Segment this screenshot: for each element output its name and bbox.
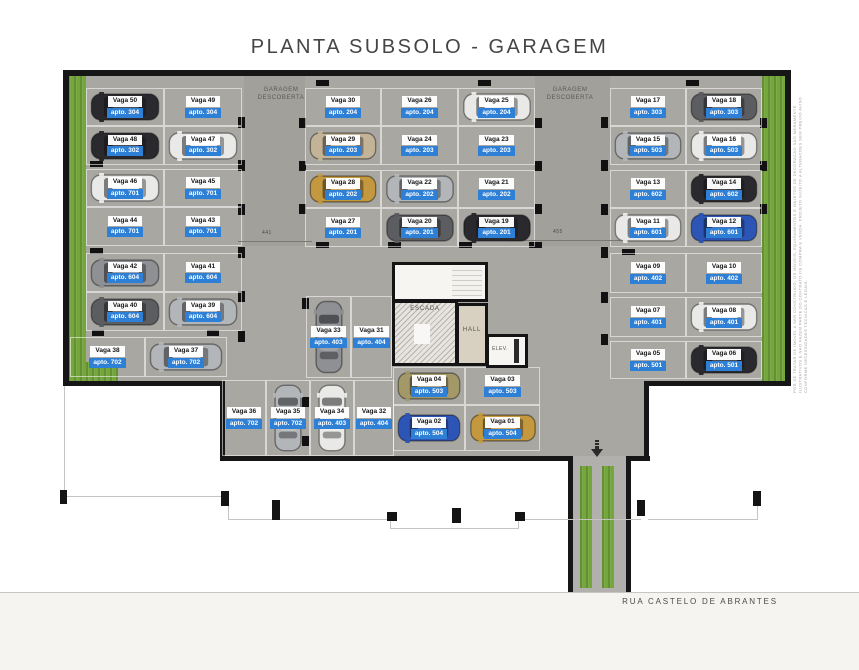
parking-stall: Vaga 03apto. 503 xyxy=(465,367,540,405)
stall-label-stack: Vaga 47apto. 302 xyxy=(185,135,221,157)
pillar-mark xyxy=(238,331,245,342)
vaga-label: Vaga 26 xyxy=(402,96,436,106)
vaga-label: Vaga 49 xyxy=(186,96,220,106)
vaga-label: Vaga 37 xyxy=(169,346,203,356)
stall-label-stack: Vaga 44apto. 701 xyxy=(107,216,143,238)
grass-strip xyxy=(602,466,614,588)
elevator-door-bar xyxy=(514,339,519,363)
vaga-label: Vaga 41 xyxy=(186,262,220,272)
vaga-label: Vaga 17 xyxy=(631,96,665,106)
apto-label: apto. 602 xyxy=(706,190,742,200)
stall-label-stack: Vaga 42apto. 604 xyxy=(107,262,143,284)
parking-stall: Vaga 11apto. 601 xyxy=(610,208,686,247)
stall-label-stack: Vaga 02apto. 504 xyxy=(411,417,447,439)
vaga-label: Vaga 31 xyxy=(354,326,388,336)
vaga-label: Vaga 16 xyxy=(707,135,741,145)
projection-line xyxy=(64,496,229,497)
apto-label: apto. 401 xyxy=(630,318,666,328)
wall xyxy=(63,381,225,386)
stall-label-stack: Vaga 43apto. 701 xyxy=(185,216,221,238)
projection-line xyxy=(518,519,641,520)
projection-line xyxy=(648,519,758,520)
vaga-label: Vaga 30 xyxy=(326,96,360,106)
stall-label-stack: Vaga 12apto. 601 xyxy=(706,217,742,239)
vaga-label: Vaga 33 xyxy=(311,326,345,336)
hall-label: HALL xyxy=(456,327,488,333)
dimension-label: 441 xyxy=(262,230,292,238)
projection-pillar-mark xyxy=(452,508,461,523)
projection-pillar-mark xyxy=(221,491,229,506)
vaga-label: Vaga 11 xyxy=(631,217,665,227)
stall-label-stack: Vaga 28apto. 202 xyxy=(325,178,361,200)
uncovered-garage-label-line1: GARAGEM xyxy=(535,86,605,94)
parking-stall: Vaga 21apto. 202 xyxy=(458,170,535,208)
parking-stall: Vaga 05apto. 501 xyxy=(610,341,686,379)
uncovered-garage-label-left: GARAGEM DESCOBERTA xyxy=(246,86,316,102)
vaga-label: Vaga 29 xyxy=(326,135,360,145)
apto-label: apto. 601 xyxy=(706,228,742,238)
apto-label: apto. 201 xyxy=(401,228,437,238)
vaga-label: Vaga 40 xyxy=(108,301,142,311)
stall-label-stack: Vaga 35apto. 702 xyxy=(270,407,306,429)
projection-pillar-mark xyxy=(753,491,761,506)
stall-label-stack: Vaga 27apto. 201 xyxy=(325,217,361,239)
apto-label: apto. 203 xyxy=(478,146,514,156)
pillar-mark xyxy=(601,117,608,128)
parking-stall: Vaga 18apto. 303 xyxy=(686,88,762,126)
apto-label: apto. 303 xyxy=(630,108,666,118)
pillar-mark xyxy=(535,161,542,171)
uncovered-garage-label-line1: GARAGEM xyxy=(246,86,316,94)
stall-label-stack: Vaga 18apto. 303 xyxy=(706,96,742,118)
vaga-label: Vaga 09 xyxy=(631,262,665,272)
stall-label-stack: Vaga 08apto. 401 xyxy=(706,306,742,328)
vaga-label: Vaga 12 xyxy=(707,217,741,227)
stall-label-stack: Vaga 14apto. 602 xyxy=(706,178,742,200)
stall-label-stack: Vaga 39apto. 604 xyxy=(185,301,221,323)
wall xyxy=(568,456,573,592)
parking-stall: Vaga 43apto. 701 xyxy=(164,207,242,246)
page-title: PLANTA SUBSOLO - GARAGEM xyxy=(0,36,859,59)
parking-stall: Vaga 44apto. 701 xyxy=(86,207,164,246)
vaga-label: Vaga 13 xyxy=(631,178,665,188)
parking-stall: Vaga 35apto. 702 xyxy=(266,380,310,456)
grass-strip xyxy=(68,75,86,362)
projection-pillar-mark xyxy=(515,512,525,521)
stall-label-stack: Vaga 49apto. 304 xyxy=(185,96,221,118)
apto-label: apto. 604 xyxy=(185,273,221,283)
apto-label: apto. 503 xyxy=(630,146,666,156)
vaga-label: Vaga 06 xyxy=(707,349,741,359)
uncovered-garage-label-line2: DESCOBERTA xyxy=(535,94,605,102)
parking-stall: Vaga 42apto. 604 xyxy=(86,253,164,292)
apto-label: apto. 403 xyxy=(310,338,346,348)
pillar-mark xyxy=(601,204,608,215)
parking-stall: Vaga 29apto. 203 xyxy=(305,126,381,165)
vaga-label: Vaga 44 xyxy=(108,216,142,226)
vaga-label: Vaga 50 xyxy=(108,96,142,106)
stall-label-stack: Vaga 17apto. 303 xyxy=(630,96,666,118)
uncovered-garage-label-line2: DESCOBERTA xyxy=(246,94,316,102)
apto-label: apto. 503 xyxy=(411,387,447,397)
apto-label: apto. 402 xyxy=(630,274,666,284)
apto-label: apto. 701 xyxy=(107,189,143,199)
parking-stall: Vaga 10apto. 402 xyxy=(686,253,762,293)
wall xyxy=(63,70,69,386)
uncovered-garage-label-right: GARAGEM DESCOBERTA xyxy=(535,86,605,102)
parking-stall: Vaga 20apto. 201 xyxy=(381,208,458,247)
projection-line xyxy=(390,528,519,529)
parking-stall: Vaga 06apto. 501 xyxy=(686,341,762,379)
stall-label-stack: Vaga 38apto. 702 xyxy=(89,346,125,368)
stall-label-stack: Vaga 36apto. 702 xyxy=(226,407,262,429)
parking-stall: Vaga 13apto. 602 xyxy=(610,170,686,208)
stall-label-stack: Vaga 37apto. 702 xyxy=(168,346,204,368)
pillar-mark xyxy=(601,292,608,303)
elevator-label: ELEV. xyxy=(487,346,513,352)
apto-label: apto. 701 xyxy=(107,227,143,237)
pillar-mark xyxy=(478,80,491,86)
projection-pillar-mark xyxy=(637,500,645,516)
vaga-label: Vaga 42 xyxy=(108,262,142,272)
pillar-mark xyxy=(686,80,699,86)
apto-label: apto. 702 xyxy=(168,358,204,368)
pillar-mark xyxy=(535,204,542,214)
vaga-label: Vaga 23 xyxy=(479,135,513,145)
apto-label: apto. 302 xyxy=(107,146,143,156)
parking-stall: Vaga 23apto. 203 xyxy=(458,126,535,165)
parking-stall: Vaga 14apto. 602 xyxy=(686,170,762,208)
vaga-label: Vaga 15 xyxy=(631,135,665,145)
vaga-label: Vaga 28 xyxy=(326,178,360,188)
wall xyxy=(220,456,573,461)
stall-label-stack: Vaga 29apto. 203 xyxy=(325,135,361,157)
vaga-label: Vaga 27 xyxy=(326,217,360,227)
stall-label-stack: Vaga 16apto. 503 xyxy=(706,135,742,157)
parking-stall: Vaga 38apto. 702 xyxy=(70,337,145,377)
apto-label: apto. 501 xyxy=(706,361,742,371)
parking-stall: Vaga 28apto. 202 xyxy=(305,170,381,208)
vaga-label: Vaga 38 xyxy=(90,346,124,356)
vaga-label: Vaga 46 xyxy=(108,177,142,187)
stall-label-stack: Vaga 10apto. 402 xyxy=(706,262,742,284)
apto-label: apto. 604 xyxy=(107,273,143,283)
stall-label-stack: Vaga 40apto. 604 xyxy=(107,301,143,323)
parking-stall: Vaga 46apto. 701 xyxy=(86,169,164,207)
wall xyxy=(63,70,791,76)
stall-label-stack: Vaga 03apto. 503 xyxy=(484,375,520,397)
wall xyxy=(785,70,791,386)
vaga-label: Vaga 34 xyxy=(315,407,349,417)
parking-stall: Vaga 08apto. 401 xyxy=(686,297,762,337)
parking-stall: Vaga 12apto. 601 xyxy=(686,208,762,247)
parking-stall: Vaga 19apto. 201 xyxy=(458,208,535,247)
apto-label: apto. 602 xyxy=(630,190,666,200)
apto-label: apto. 204 xyxy=(325,108,361,118)
vaga-label: Vaga 35 xyxy=(271,407,305,417)
stall-label-stack: Vaga 11apto. 601 xyxy=(630,217,666,239)
parking-stall: Vaga 25apto. 204 xyxy=(458,88,535,126)
apto-label: apto. 404 xyxy=(356,419,392,429)
parking-stall: Vaga 15apto. 503 xyxy=(610,126,686,165)
vaga-label: Vaga 39 xyxy=(186,301,220,311)
apto-label: apto. 604 xyxy=(185,312,221,322)
parking-stall: Vaga 09apto. 402 xyxy=(610,253,686,293)
stall-label-stack: Vaga 34apto. 403 xyxy=(314,407,350,429)
apto-label: apto. 304 xyxy=(107,108,143,118)
stall-label-stack: Vaga 48apto. 302 xyxy=(107,135,143,157)
vaga-label: Vaga 47 xyxy=(186,135,220,145)
stair-treads xyxy=(452,266,482,296)
parking-stall: Vaga 27apto. 201 xyxy=(305,208,381,247)
apto-label: apto. 203 xyxy=(325,146,361,156)
apto-label: apto. 504 xyxy=(484,429,520,439)
wall xyxy=(644,381,791,386)
parking-stall: Vaga 32apto. 404 xyxy=(354,380,394,456)
apto-label: apto. 503 xyxy=(706,146,742,156)
stair-landing xyxy=(414,324,430,344)
hall-room xyxy=(456,303,488,366)
parking-stall: Vaga 26apto. 204 xyxy=(381,88,458,126)
apto-label: apto. 504 xyxy=(411,429,447,439)
stall-label-stack: Vaga 31apto. 404 xyxy=(353,326,389,348)
stall-label-stack: Vaga 01apto. 504 xyxy=(484,417,520,439)
stall-label-stack: Vaga 22apto. 202 xyxy=(401,178,437,200)
stall-label-stack: Vaga 41apto. 604 xyxy=(185,262,221,284)
stall-label-stack: Vaga 46apto. 701 xyxy=(107,177,143,199)
vaga-label: Vaga 03 xyxy=(485,375,519,385)
projection-pillar-mark xyxy=(272,500,280,520)
apto-label: apto. 201 xyxy=(325,228,361,238)
parking-stall: Vaga 04apto. 503 xyxy=(393,367,465,405)
stall-label-stack: Vaga 23apto. 203 xyxy=(478,135,514,157)
parking-stall: Vaga 48apto. 302 xyxy=(86,126,164,165)
apto-label: apto. 503 xyxy=(484,387,520,397)
street-name-label: RUA CASTELO DE ABRANTES xyxy=(600,597,800,606)
projection-line xyxy=(228,519,391,520)
stall-label-stack: Vaga 25apto. 204 xyxy=(478,96,514,118)
parking-stall: Vaga 36apto. 702 xyxy=(222,380,266,456)
stall-label-stack: Vaga 06apto. 501 xyxy=(706,349,742,371)
stall-label-stack: Vaga 26apto. 204 xyxy=(401,96,437,118)
pillar-mark xyxy=(601,160,608,171)
vaga-label: Vaga 24 xyxy=(402,135,436,145)
stall-label-stack: Vaga 50apto. 304 xyxy=(107,96,143,118)
apto-label: apto. 202 xyxy=(401,190,437,200)
vaga-label: Vaga 07 xyxy=(631,306,665,316)
projection-line xyxy=(64,386,65,497)
parking-stall: Vaga 22apto. 202 xyxy=(381,170,458,208)
vaga-label: Vaga 48 xyxy=(108,135,142,145)
vaga-label: Vaga 19 xyxy=(479,217,513,227)
parking-stall: Vaga 34apto. 403 xyxy=(310,380,354,456)
floorplan-page: PLANTA SUBSOLO - GARAGEM Vaga 50apto. 30… xyxy=(0,0,859,670)
vaga-label: Vaga 18 xyxy=(707,96,741,106)
stall-label-stack: Vaga 07apto. 401 xyxy=(630,306,666,328)
pillar-mark xyxy=(316,80,329,86)
parking-stall: Vaga 31apto. 404 xyxy=(351,296,392,378)
stall-label-stack: Vaga 19apto. 201 xyxy=(478,217,514,239)
vaga-label: Vaga 01 xyxy=(485,417,519,427)
stall-label-stack: Vaga 15apto. 503 xyxy=(630,135,666,157)
parking-stall: Vaga 47apto. 302 xyxy=(164,126,242,165)
vaga-label: Vaga 14 xyxy=(707,178,741,188)
vaga-label: Vaga 08 xyxy=(707,306,741,316)
vaga-label: Vaga 32 xyxy=(357,407,391,417)
apto-label: apto. 402 xyxy=(706,274,742,284)
parking-stall: Vaga 45apto. 701 xyxy=(164,169,242,207)
stairs-label: ESCADA xyxy=(392,306,458,312)
vaga-label: Vaga 05 xyxy=(631,349,665,359)
stall-label-stack: Vaga 13apto. 602 xyxy=(630,178,666,200)
vaga-label: Vaga 21 xyxy=(479,178,513,188)
stall-label-stack: Vaga 45apto. 701 xyxy=(185,177,221,199)
parking-stall: Vaga 50apto. 304 xyxy=(86,88,164,126)
vaga-label: Vaga 45 xyxy=(186,177,220,187)
apto-label: apto. 501 xyxy=(630,361,666,371)
parking-stall: Vaga 16apto. 503 xyxy=(686,126,762,165)
pillar-mark xyxy=(601,247,608,258)
parking-stall: Vaga 41apto. 604 xyxy=(164,253,242,292)
apto-label: apto. 204 xyxy=(478,108,514,118)
parking-stall: Vaga 39apto. 604 xyxy=(164,292,242,331)
parking-stall: Vaga 40apto. 604 xyxy=(86,292,164,331)
apto-label: apto. 302 xyxy=(185,146,221,156)
apto-label: apto. 401 xyxy=(706,318,742,328)
vaga-label: Vaga 25 xyxy=(479,96,513,106)
apto-label: apto. 601 xyxy=(630,228,666,238)
apto-label: apto. 604 xyxy=(107,312,143,322)
apto-label: apto. 701 xyxy=(185,189,221,199)
vaga-label: Vaga 43 xyxy=(186,216,220,226)
apto-label: apto. 702 xyxy=(89,358,125,368)
dimension-line xyxy=(238,241,312,242)
stall-label-stack: Vaga 32apto. 404 xyxy=(356,407,392,429)
stall-label-stack: Vaga 24apto. 203 xyxy=(401,135,437,157)
wall xyxy=(626,456,631,592)
parking-stall: Vaga 17apto. 303 xyxy=(610,88,686,126)
pillar-mark xyxy=(535,118,542,128)
wall xyxy=(644,381,649,461)
apto-label: apto. 403 xyxy=(314,419,350,429)
disclaimer-vertical-text: POR SE TRATAR DE IMOVEL A SER CONSTRUIDO… xyxy=(792,88,810,393)
vaga-label: Vaga 04 xyxy=(412,375,446,385)
parking-stall: Vaga 02apto. 504 xyxy=(393,405,465,451)
apto-label: apto. 202 xyxy=(325,190,361,200)
parking-stall: Vaga 24apto. 203 xyxy=(381,126,458,165)
parking-stall: Vaga 49apto. 304 xyxy=(164,88,242,126)
apto-label: apto. 404 xyxy=(353,338,389,348)
vaga-label: Vaga 10 xyxy=(707,262,741,272)
apto-label: apto. 702 xyxy=(226,419,262,429)
parking-stall: Vaga 33apto. 403 xyxy=(306,296,351,378)
stall-label-stack: Vaga 09apto. 402 xyxy=(630,262,666,284)
vaga-label: Vaga 02 xyxy=(412,417,446,427)
driveway-entry-arrow-icon xyxy=(590,440,604,457)
grass-strip xyxy=(580,466,592,588)
stall-label-stack: Vaga 20apto. 201 xyxy=(401,217,437,239)
stall-label-stack: Vaga 30apto. 204 xyxy=(325,96,361,118)
dimension-label: 455 xyxy=(553,229,583,237)
parking-stall: Vaga 07apto. 401 xyxy=(610,297,686,337)
stall-label-stack: Vaga 04apto. 503 xyxy=(411,375,447,397)
apto-label: apto. 304 xyxy=(185,108,221,118)
apto-label: apto. 701 xyxy=(185,227,221,237)
stall-label-stack: Vaga 33apto. 403 xyxy=(310,326,346,348)
vaga-label: Vaga 36 xyxy=(227,407,261,417)
apto-label: apto. 201 xyxy=(478,228,514,238)
stall-label-stack: Vaga 21apto. 202 xyxy=(478,178,514,200)
projection-pillar-mark xyxy=(60,490,67,504)
stall-label-stack: Vaga 05apto. 501 xyxy=(630,349,666,371)
apto-label: apto. 202 xyxy=(478,190,514,200)
apto-label: apto. 203 xyxy=(401,146,437,156)
vaga-label: Vaga 22 xyxy=(402,178,436,188)
parking-stall: Vaga 37apto. 702 xyxy=(145,337,227,377)
parking-stall: Vaga 01apto. 504 xyxy=(465,405,540,451)
apto-label: apto. 303 xyxy=(706,108,742,118)
parking-stall: Vaga 30apto. 204 xyxy=(305,88,381,126)
pillar-mark xyxy=(601,334,608,345)
apto-label: apto. 702 xyxy=(270,419,306,429)
apto-label: apto. 204 xyxy=(401,108,437,118)
projection-pillar-mark xyxy=(387,512,397,521)
vaga-label: Vaga 20 xyxy=(402,217,436,227)
